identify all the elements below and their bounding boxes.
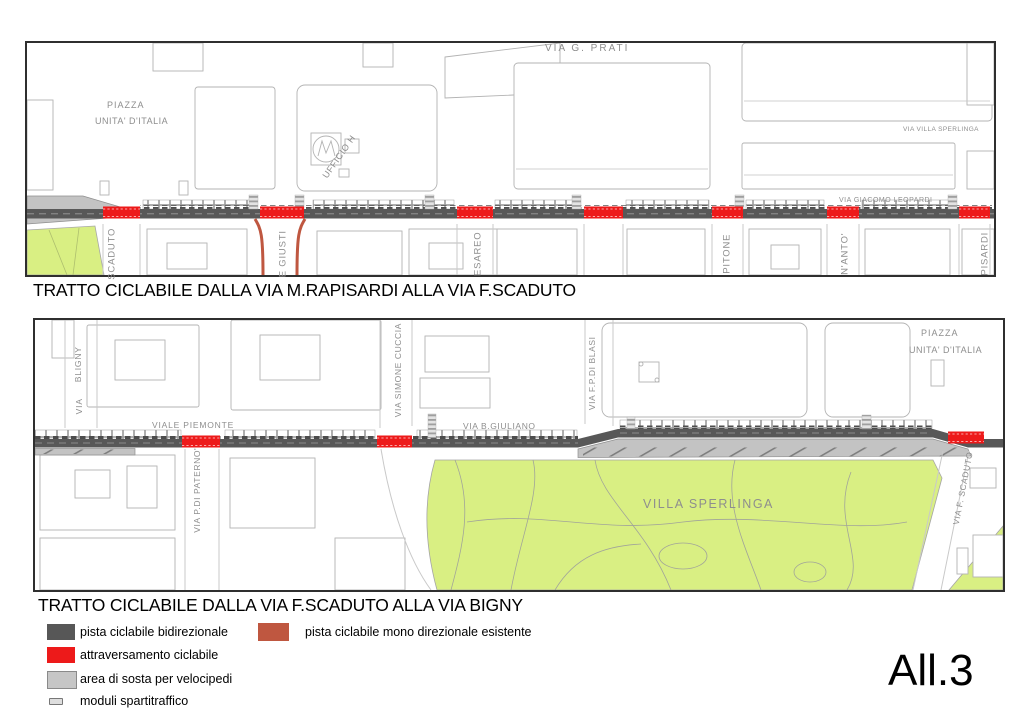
legend-label-crossing: attraversamento ciclabile	[80, 647, 218, 663]
viale-piemonte-label: VIALE PIEMONTE	[152, 421, 234, 430]
legend-label-bidirectional: pista ciclabile bidirezionale	[80, 624, 228, 640]
green-area-villa-sperlinga	[427, 460, 1003, 590]
map2-drawing	[35, 320, 1003, 590]
piazza-label-2: UNITA' D'ITALIA	[95, 117, 168, 126]
map2-title: TRATTO CICLABILE DALLA VIA F.SCADUTO ALL…	[38, 595, 523, 616]
legend-swatch-crossing	[47, 647, 75, 663]
street-label-pitone: PITONE	[722, 224, 732, 284]
street-label-cesareo: ESAREO	[473, 224, 483, 284]
street-label-scaduto: SCADUTO	[107, 224, 117, 284]
street-label-rapisardi: PISARDI	[980, 224, 990, 284]
street-label-paterno: VIA P.DI PATERNO'	[193, 445, 202, 535]
map2-panel: BLIGNY VIA VIALE PIEMONTE VIA B.GIULIANO…	[33, 318, 1005, 592]
map1-title: TRATTO CICLABILE DALLA VIA M.RAPISARDI A…	[33, 280, 576, 301]
street-label-fp-di-blasi: VIA F.P.DI BLASI	[588, 333, 597, 413]
legend-label-mono-existing: pista ciclabile mono direzionale esisten…	[305, 624, 532, 640]
street-label-bligny-via: VIA	[75, 391, 84, 421]
via-g-prati-label: VIA G. PRATI	[545, 44, 629, 54]
piazza-label: PIAZZA	[107, 101, 145, 110]
legend-swatch-bidirectional	[47, 624, 75, 640]
legend-swatch-parking	[47, 671, 77, 689]
street-label-giusti: E GIUSTI	[278, 224, 288, 284]
legend-swatch-mono-existing	[258, 623, 289, 641]
via-b-giuliano-label: VIA B.GIULIANO	[463, 422, 536, 431]
drawing-sheet: PIAZZA UNITA' D'ITALIA VIA G. PRATI VIA …	[0, 0, 1024, 724]
villa-sperlinga-label: VILLA SPERLINGA	[643, 498, 774, 511]
via-villa-sperlinga-label: VIA VILLA SPERLINGA	[903, 127, 979, 134]
via-giacomo-leopardi-label: VIA GIACOMO LEOPARDI	[839, 197, 933, 204]
legend-label-parking: area di sosta per velocipedi	[80, 671, 232, 687]
street-label-santanto: N'ANTO'	[840, 224, 850, 284]
annex-number: All.3	[888, 646, 974, 696]
piazza-label: PIAZZA	[921, 329, 959, 338]
piazza-label-2: UNITA' D'ITALIA	[909, 346, 982, 355]
green-area-small	[27, 226, 104, 275]
street-label-bligny: BLIGNY	[74, 339, 83, 389]
legend-swatch-modules	[49, 698, 63, 705]
legend-label-modules: moduli spartitraffico	[80, 693, 188, 709]
street-label-simone-cuccia: VIA SIMONE CUCCIA	[394, 327, 403, 417]
map1-panel: PIAZZA UNITA' D'ITALIA VIA G. PRATI VIA …	[25, 41, 996, 277]
